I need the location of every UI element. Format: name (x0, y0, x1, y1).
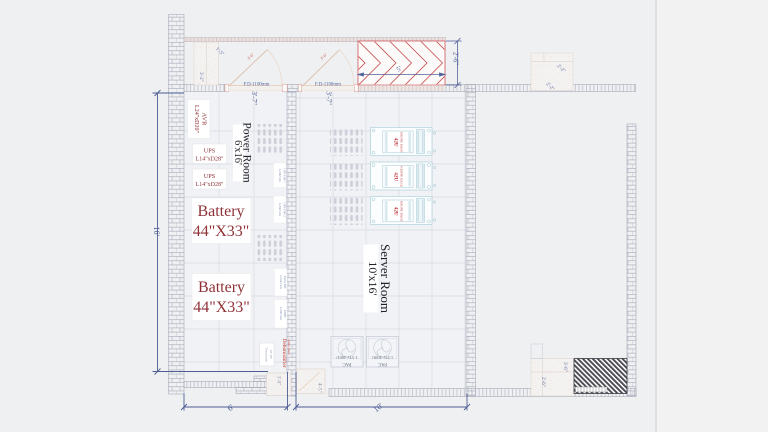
svg-text:PAC: PAC (378, 361, 387, 366)
svg-text:3'-7": 3'-7" (325, 91, 333, 105)
svg-text:44"X33": 44"X33" (193, 299, 250, 316)
svg-text:Dehumidifier: Dehumidifier (281, 339, 288, 368)
svg-text:3'-2": 3'-2" (198, 72, 203, 82)
svg-text:PAC: PAC (343, 361, 352, 366)
svg-text:Battery: Battery (197, 203, 244, 220)
svg-text:AVR: AVR (201, 112, 208, 126)
svg-text:6'x16': 6'x16' (232, 140, 243, 165)
svg-text:42U: 42U (393, 207, 399, 216)
svg-text:42U: 42U (393, 138, 399, 147)
svg-text:Battery: Battery (198, 279, 245, 296)
svg-text:3'-6": 3'-6" (562, 362, 567, 372)
svg-text:2'-6": 2'-6" (452, 52, 459, 65)
svg-text:UPS: UPS (204, 173, 216, 180)
svg-text:3'-7": 3'-7" (250, 91, 258, 105)
svg-text:F.D-1100mm: F.D-1100mm (244, 83, 270, 88)
svg-text:10'x16': 10'x16' (366, 261, 380, 295)
svg-text:2'-6": 2'-6" (540, 377, 545, 387)
svg-text:L20kVAh: L20kVAh (279, 307, 283, 321)
svg-text:44"X33": 44"X33" (193, 223, 250, 240)
svg-text:KRONE RACK: KRONE RACK (400, 166, 404, 187)
svg-text:3'-0": 3'-0" (276, 376, 281, 386)
svg-text:L20kVAh: L20kVAh (278, 169, 282, 183)
svg-text:Thermostat: Thermostat (265, 347, 269, 362)
svg-text:L24"xD20": L24"xD20" (193, 105, 199, 133)
svg-text:16': 16' (152, 227, 161, 237)
svg-text:L20kVAh: L20kVAh (279, 275, 283, 289)
svg-text:UPS DB-2: UPS DB-2 (283, 202, 287, 217)
svg-text:48" AFF: 48" AFF (269, 350, 272, 359)
svg-text:UPS: UPS (204, 148, 216, 155)
svg-text:On floor 24x14: On floor 24x14 (287, 339, 290, 356)
svg-text:KRONE RACK: KRONE RACK (400, 201, 404, 222)
svg-text:1.5Tr-400U: 1.5Tr-400U (336, 355, 358, 360)
svg-text:1.5Tr-400U: 1.5Tr-400U (371, 355, 393, 360)
svg-text:L14"xD28": L14"xD28" (196, 182, 224, 188)
svg-text:UPS DB-1: UPS DB-1 (283, 168, 287, 183)
svg-text:KRONE RACK: KRONE RACK (400, 132, 404, 153)
svg-text:L14"xD28": L14"xD28" (196, 157, 224, 163)
svg-text:42U: 42U (393, 172, 399, 181)
svg-text:4'-5": 4'-5" (317, 383, 322, 393)
svg-text:L20kVAh: L20kVAh (278, 203, 282, 217)
svg-text:F.D-1100mm: F.D-1100mm (315, 83, 341, 88)
